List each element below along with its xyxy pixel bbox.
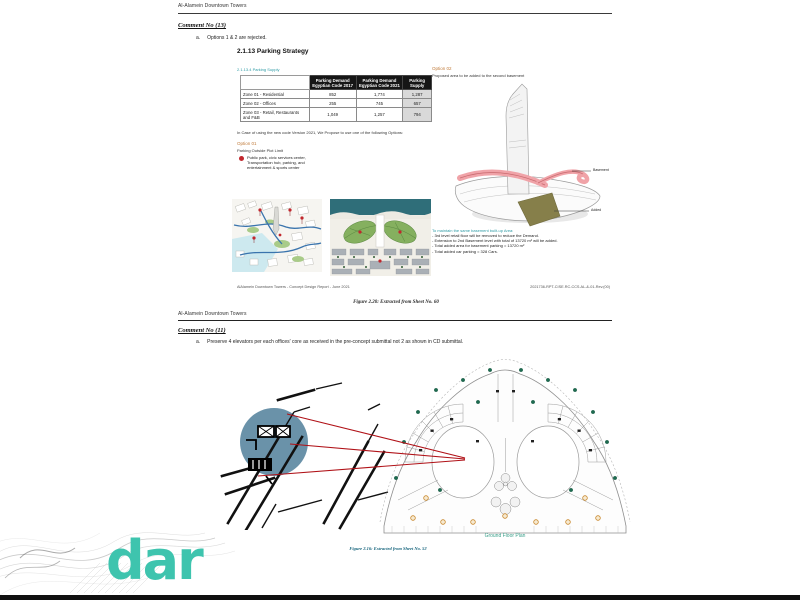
demand-2021-value: 1,774 bbox=[356, 90, 403, 99]
zone-label: Zone 01 - Residential bbox=[241, 90, 310, 99]
comment-13-item: a. Options 1 & 2 are rejected. bbox=[196, 35, 267, 41]
site-plan-image bbox=[330, 199, 431, 281]
table-header-demand-2021: Parking Demand Egyptian Code 2021 bbox=[356, 76, 403, 90]
bottom-bar bbox=[0, 595, 800, 600]
comment-13-item-text: Options 1 & 2 are rejected. bbox=[207, 35, 266, 41]
page1-footer-left: AlAlamein Downtown Towers - Concept Desi… bbox=[237, 285, 350, 289]
masterplan-3d-image bbox=[232, 199, 322, 277]
demand-2021-value: 1,257 bbox=[356, 108, 403, 122]
comment-13-item-label: a. bbox=[196, 35, 200, 41]
page1-header-rule bbox=[178, 13, 612, 14]
table-row: Zone 02 - Offices 255 745 657 bbox=[241, 99, 432, 108]
comment-11-item-text: Preserve 4 elevators per each offices' c… bbox=[207, 339, 463, 345]
option1-title: Option 01 bbox=[237, 141, 257, 146]
zone-label: Zone 03 - Retail, Restaurants and F&B bbox=[241, 108, 310, 122]
supply-value: 794 bbox=[403, 108, 432, 122]
page2-header: Al-Alamein Downtown Towers bbox=[178, 311, 247, 317]
subsection-title: 2.1.13.4 Parking Supply bbox=[237, 67, 279, 72]
basement-label-text: Basement bbox=[593, 168, 609, 172]
option1-bullet: Public park, civic services center, Tran… bbox=[239, 155, 309, 170]
ground-floor-plan-caption: Ground Floor Plan bbox=[455, 533, 555, 539]
page1-footer-right: 2021736-RPT-CISE.RC-CCS.AL-&-01-Rev.(00) bbox=[440, 285, 610, 289]
comment-11-title: Comment No (11) bbox=[178, 327, 226, 334]
added-label-text: Added bbox=[591, 208, 601, 212]
option2-title: Option 02 bbox=[432, 66, 452, 71]
option2-subtitle: Proposed area to be added to the second … bbox=[432, 73, 592, 78]
supply-value: 1,287 bbox=[403, 90, 432, 99]
comment-11-item: a. Preserve 4 elevators per each offices… bbox=[196, 339, 756, 345]
section-title: 2.1.13 Parking Strategy bbox=[237, 48, 309, 55]
table-corner-cell bbox=[241, 76, 310, 90]
table-header-demand-2017: Parking Demand Egyptian Code 2017 bbox=[309, 76, 356, 90]
table-row: Zone 03 - Retail, Restaurants and F&B 1,… bbox=[241, 108, 432, 122]
demand-2017-value: 255 bbox=[309, 99, 356, 108]
table-note: In Case of using the new code Version 20… bbox=[237, 130, 437, 135]
page2-header-rule bbox=[178, 320, 612, 321]
option1-bullet-text: Public park, civic services center, Tran… bbox=[247, 155, 309, 170]
tower-diagram: Basement Added bbox=[450, 82, 612, 235]
supply-value: 657 bbox=[403, 99, 432, 108]
option1-subtitle: Parking Outside Plot Limit bbox=[237, 148, 283, 153]
demand-2021-value: 745 bbox=[356, 99, 403, 108]
comment-11-item-label: a. bbox=[196, 339, 200, 345]
comment-13-title: Comment No (13) bbox=[178, 22, 226, 29]
figure-2-20-caption: Figure 2.20: Extracted from Sheet No. 60 bbox=[246, 300, 546, 305]
dar-logo: dar bbox=[106, 534, 202, 588]
parking-supply-table: Parking Demand Egyptian Code 2017 Parkin… bbox=[240, 75, 432, 122]
table-header-supply: Parking Supply bbox=[403, 76, 432, 90]
demand-2017-value: 1,049 bbox=[309, 108, 356, 122]
maintain-line-4: - Total added car parking = 328 Cars. bbox=[432, 249, 610, 254]
zone-label: Zone 02 - Offices bbox=[241, 99, 310, 108]
document-viewer: Al-Alamein Downtown Towers Comment No (1… bbox=[0, 0, 800, 600]
table-row: Zone 01 - Residential 852 1,774 1,287 bbox=[241, 90, 432, 99]
demand-2017-value: 852 bbox=[309, 90, 356, 99]
ground-floor-plan-image bbox=[378, 350, 632, 550]
red-bullet-icon bbox=[239, 156, 244, 161]
maintain-block: To maintain the same basement built-up A… bbox=[432, 228, 610, 254]
page1-header: Al-Alamein Downtown Towers bbox=[178, 3, 247, 9]
